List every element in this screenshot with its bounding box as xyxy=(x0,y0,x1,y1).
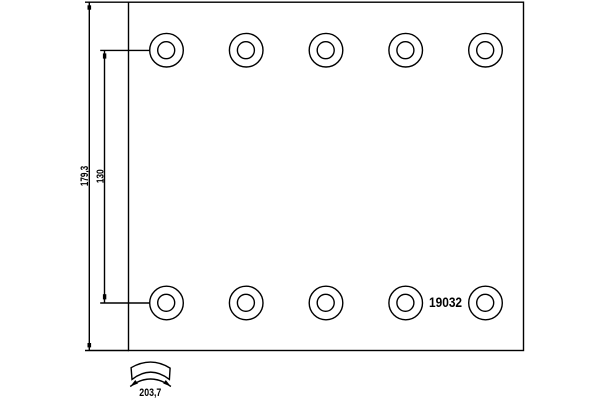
svg-text:130: 130 xyxy=(95,169,107,183)
svg-text:179,3: 179,3 xyxy=(79,165,92,186)
svg-text:203,7: 203,7 xyxy=(139,387,161,399)
svg-text:19032: 19032 xyxy=(429,294,462,310)
